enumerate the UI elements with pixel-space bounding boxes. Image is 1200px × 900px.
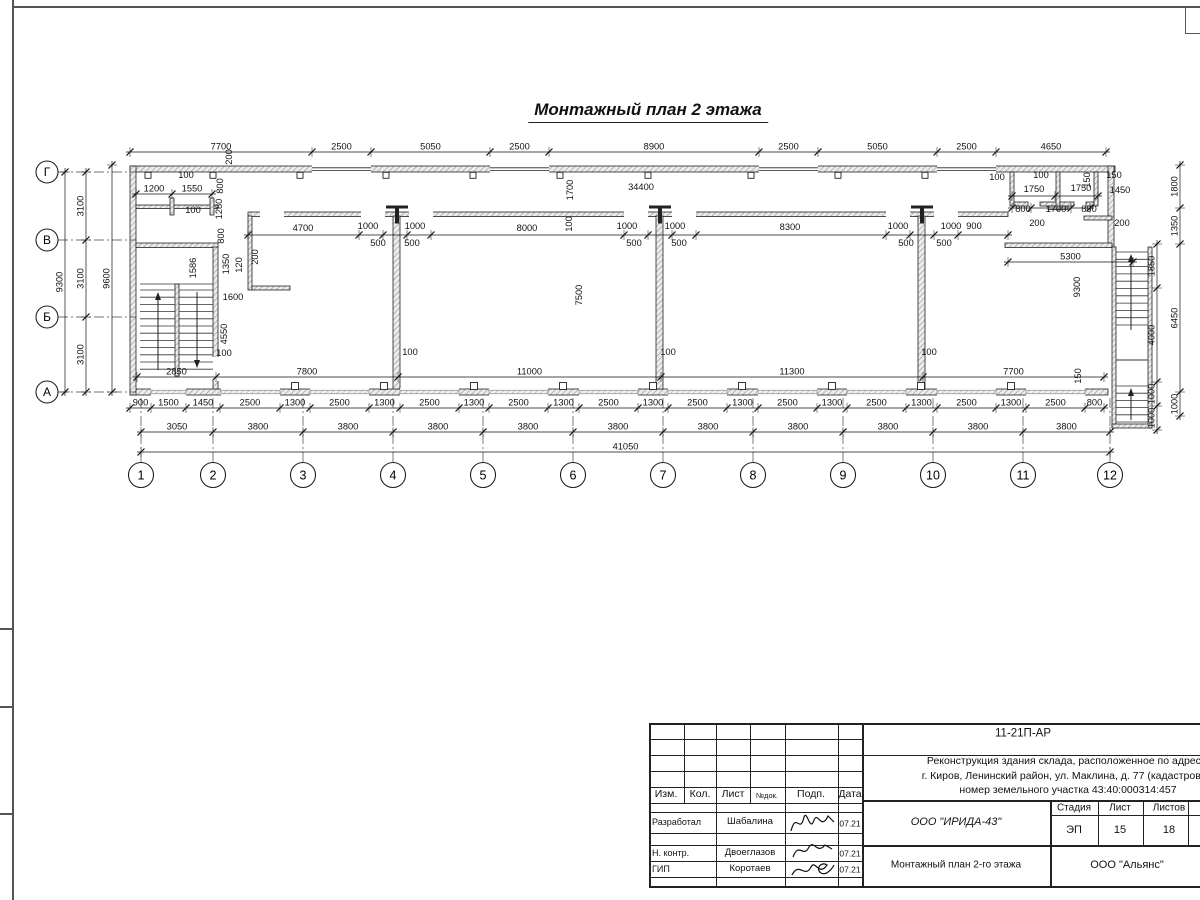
dim-label: 2500 [778, 142, 799, 152]
wall-openings [151, 165, 1085, 395]
project-description-line1: Реконструкция здания склада, расположенн… [927, 756, 1200, 768]
dim-label: 1750 [1024, 184, 1045, 194]
dim-label: 8000 [517, 223, 538, 233]
drawing-sheet: { "sheet": { "title": "Монтажный план 2 … [0, 0, 1200, 900]
dim-label: 4700 [293, 223, 314, 233]
dim-label: 4000 [1147, 325, 1157, 346]
signature-ncontrol-gip [787, 839, 837, 883]
dim-chain: 1800135064501000 [1170, 161, 1186, 420]
dim-label: 2850 [166, 367, 187, 377]
dim-label: 100 [1033, 170, 1049, 180]
wall-stub-1600 [252, 286, 290, 290]
dim-label: 500 [404, 238, 420, 248]
wall-cross-3 [918, 216, 925, 389]
wall-cross-1 [393, 216, 400, 389]
dim-label: 3800 [878, 422, 899, 432]
dim-label: 11000 [517, 367, 542, 377]
dim-label: 1700 [1046, 204, 1067, 214]
dim-label: 1450 [193, 398, 214, 408]
building-walls [130, 166, 1152, 428]
dim-label: 100 [660, 347, 676, 357]
axis-label: 9 [840, 469, 847, 483]
dim-label: 200 [224, 149, 234, 165]
dim-label: 3050 [167, 422, 188, 432]
dim-label: 2500 [1045, 398, 1066, 408]
project-description-line2: г. Киров, Ленинский район, ул. Маклина, … [922, 771, 1200, 783]
dim-label: 800 [1081, 204, 1097, 214]
dim-label: 2500 [509, 142, 530, 152]
dim-label: 1350 [1170, 216, 1180, 237]
wall-corridor-right [1005, 243, 1112, 248]
dim-chain: 770025005050250089002500505025004650 [126, 142, 1110, 158]
dim-label: 500 [936, 238, 952, 248]
axis-label: 7 [660, 469, 667, 483]
dim-label: 8900 [644, 142, 665, 152]
drawing-title: Монтажный план 2-го этажа [891, 860, 1021, 871]
dim-label: 7700 [1003, 367, 1024, 377]
dim-label: 3800 [788, 422, 809, 432]
dimensions: 7700250050502500890025005050250046509001… [55, 142, 1186, 458]
dim-label: 500 [671, 238, 687, 248]
axis-label: Б [43, 310, 51, 324]
axis-label: 10 [926, 469, 940, 483]
dim-label: 5050 [867, 142, 888, 152]
wall-stair-middle [175, 284, 179, 376]
dim-label: 1300 [464, 398, 485, 408]
dim-label: 1300 [643, 398, 664, 408]
dim-label: 3100 [76, 268, 86, 289]
axis-label: 8 [750, 469, 757, 483]
dim-label: 500 [626, 238, 642, 248]
axis-label: 4 [390, 469, 397, 483]
axis-label: 2 [210, 469, 217, 483]
dim-chain: 2850780011000113007700 [133, 367, 1108, 383]
dim-label: 100 [989, 172, 1005, 182]
dim-label: 8300 [780, 222, 801, 232]
dim-label: 1850 [1147, 256, 1157, 277]
floor-plan-drawing: ГВБА123456789101112 77002500505025008900… [0, 0, 1200, 560]
dim-label: 800 [215, 178, 225, 194]
dim-label: 3800 [968, 422, 989, 432]
dim-label: 1000 [888, 221, 909, 231]
sheet-number: 15 [1114, 824, 1126, 836]
wall-room-left-1 [136, 205, 218, 209]
dim-label: 3800 [248, 422, 269, 432]
dim-label: 1300 [911, 398, 932, 408]
title-block: 11-21П-АР Реконструкция здания склада, р… [649, 723, 1200, 889]
dim-label: 100 [185, 205, 201, 215]
dim-label: 200 [1029, 218, 1045, 228]
dim-chain: 12001550 [132, 184, 216, 200]
name-ncontrol: Двоеглазов [725, 848, 776, 858]
col-header-ndok: №док. [756, 791, 778, 799]
col-header-podp: Подп. [797, 789, 825, 801]
dim-label: 11300 [779, 367, 804, 377]
dim-label: 200 [1114, 218, 1130, 228]
dim-label: 1000 [405, 221, 426, 231]
dim-label: 1000 [665, 221, 686, 231]
dim-label: 9600 [102, 268, 112, 289]
col-header-list: Лист [722, 789, 745, 801]
dim-chain: 310031003100 [76, 168, 92, 396]
stage-label: Стадия [1057, 802, 1091, 813]
dim-label: 1586 [188, 258, 198, 279]
dim-label: 1350 [221, 254, 231, 275]
dim-label: 7500 [574, 285, 584, 306]
col-header-data: Дата [838, 789, 861, 801]
dim-label: 100 [564, 216, 574, 232]
binding-mark [0, 706, 13, 708]
dim-label: 3100 [76, 196, 86, 217]
axis-label: 12 [1103, 469, 1117, 483]
role-ncontrol: Н. контр. [652, 848, 689, 858]
axis-label: 5 [480, 469, 487, 483]
dim-label: 3800 [608, 422, 629, 432]
axis-label: А [43, 385, 51, 399]
dim-label: 9300 [1072, 277, 1082, 298]
wall-tr-h5 [1084, 216, 1112, 220]
dim-chain: 9600 [102, 161, 118, 396]
dim-label: 2500 [240, 398, 261, 408]
dim-label: 5050 [420, 142, 441, 152]
dim-label: 100 [216, 348, 232, 358]
name-gip: Коротаев [729, 864, 770, 874]
dim-label: 1000 [358, 221, 379, 231]
axis-label: Г [44, 165, 51, 179]
dim-label: 2500 [956, 398, 977, 408]
dim-chain: 9001500145025001300250013002500130025001… [126, 398, 1108, 414]
dim-label: 4650 [1041, 142, 1062, 152]
dim-label: 2500 [956, 142, 977, 152]
dim-label: 9300 [55, 272, 65, 293]
dim-label: 1280 [214, 199, 224, 220]
dim-label: 1300 [732, 398, 753, 408]
dim-chain: 1850400010001000 [1147, 240, 1163, 434]
wall-left [130, 166, 136, 395]
dim-label: 800 [1087, 398, 1103, 408]
dim-label: 120 [234, 257, 244, 273]
axis-label: 1 [138, 469, 145, 483]
name-developer: Шабалина [727, 817, 773, 827]
wall-room-left-2 [136, 243, 218, 248]
dim-label: 1200 [144, 184, 165, 194]
dim-label: 4550 [219, 324, 229, 345]
axis-label: 6 [570, 469, 577, 483]
dim-label: 34400 [628, 182, 654, 192]
dim-label: 500 [370, 238, 386, 248]
dim-label: 1300 [822, 398, 843, 408]
wall-tr-3 [1094, 172, 1098, 206]
dim-label: 900 [133, 398, 149, 408]
dim-label: 1000 [1147, 408, 1157, 429]
date-developer: 07.21 [839, 819, 860, 828]
dim-label: 1300 [374, 398, 395, 408]
dim-label: 2500 [508, 398, 529, 408]
dim-label: 1000 [617, 221, 638, 231]
sheets-total: 18 [1163, 824, 1175, 836]
role-developer: Разработал [652, 817, 701, 827]
dim-label: 1000 [941, 221, 962, 231]
dim-label: 150 [1073, 368, 1083, 384]
dim-label: 2500 [777, 398, 798, 408]
signature-developer [787, 807, 837, 837]
dim-label: 900 [966, 221, 982, 231]
dim-label: 1000 [1147, 384, 1157, 405]
binding-mark [0, 628, 13, 630]
stage-value: ЭП [1066, 824, 1082, 836]
axis-label: В [43, 233, 51, 247]
org-name: ООО "ИРИДА-43" [911, 816, 1002, 828]
dim-label: 100 [921, 347, 937, 357]
dim-chain: 3050380038003800380038003800380038003800… [137, 422, 1114, 438]
wall-shaft-left [1112, 247, 1116, 428]
wall-cross-2 [656, 216, 663, 389]
dim-label: 2500 [866, 398, 887, 408]
staircases [140, 252, 1148, 422]
dim-label: 1800 [1170, 176, 1180, 197]
dim-label: 3800 [428, 422, 449, 432]
col-header-kol: Кол. [690, 789, 711, 801]
dim-label: 6450 [1170, 308, 1180, 329]
dim-label: 1300 [1001, 398, 1022, 408]
dim-label: 2500 [331, 142, 352, 152]
dim-label: 800 [216, 228, 226, 244]
sheets-label: Листов [1153, 802, 1186, 813]
dim-label: 3800 [338, 422, 359, 432]
dim-label: 2500 [329, 398, 350, 408]
dim-chain: 9300 [55, 168, 71, 396]
dim-label: 1300 [285, 398, 306, 408]
dim-label: 3800 [1056, 422, 1077, 432]
dim-chain: 41050 [137, 442, 1114, 458]
date-gip: 07.21 [839, 865, 860, 874]
project-description-line3: номер земельного участка 43:40:000314:45… [959, 785, 1176, 797]
dim-label: 150 [1082, 172, 1092, 188]
sheet-label: Лист [1109, 802, 1131, 813]
dim-label: 100 [402, 347, 418, 357]
dim-label: 41050 [613, 442, 639, 452]
dim-label: 7800 [297, 367, 318, 377]
dim-label: 3100 [76, 344, 86, 365]
dim-label: 1000 [1170, 394, 1180, 415]
dim-label: 800 [1015, 204, 1031, 214]
dim-label: 1550 [182, 184, 203, 194]
dim-label: 500 [898, 238, 914, 248]
dim-label: 1450 [1110, 185, 1131, 195]
dim-label: 1500 [158, 398, 179, 408]
role-gip: ГИП [652, 864, 670, 874]
dim-label: 2500 [687, 398, 708, 408]
dim-label: 150 [1106, 170, 1122, 180]
dim-label: 5300 [1060, 252, 1081, 262]
dim-label: 3800 [698, 422, 719, 432]
dim-label: 3800 [518, 422, 539, 432]
axis-label: 3 [300, 469, 307, 483]
col-header-izm: Изм. [655, 789, 678, 801]
date-ncontrol: 07.21 [839, 849, 860, 858]
dim-label: 1300 [553, 398, 574, 408]
contractor-name: ООО "Альянс" [1090, 859, 1164, 871]
column-stub [170, 198, 174, 215]
dim-label: 2500 [419, 398, 440, 408]
binding-mark [0, 813, 13, 815]
dim-label: 200 [250, 249, 260, 265]
columns [145, 172, 1015, 389]
dim-label: 2500 [598, 398, 619, 408]
document-number: 11-21П-АР [995, 728, 1051, 741]
dim-label: 1600 [223, 292, 244, 302]
dim-label: 100 [178, 170, 194, 180]
dim-label: 1700 [565, 180, 575, 201]
axis-label: 11 [1017, 469, 1030, 483]
